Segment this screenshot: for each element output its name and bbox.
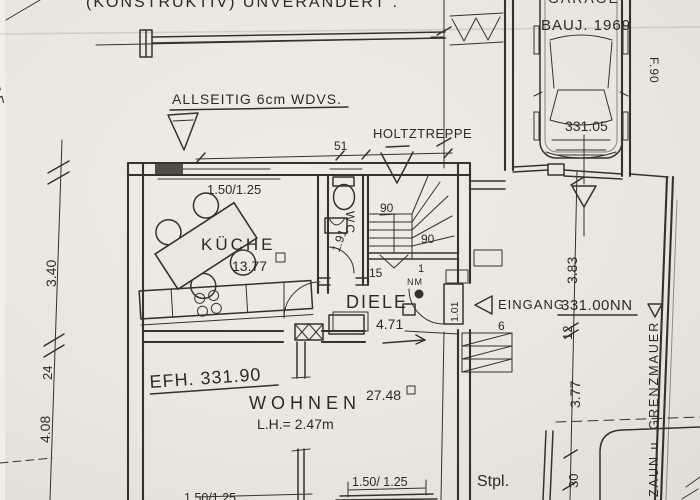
paper-background <box>0 0 700 500</box>
door-width-label: 1.01 <box>449 301 461 322</box>
dim-340: 3.40 <box>43 260 59 287</box>
wohnen-area: 27.48 <box>366 387 401 403</box>
construction-note: (KONSTRUKTIV) UNVERÄNDERT . <box>86 0 399 11</box>
stpl-label: Stpl. <box>477 473 509 490</box>
window-dim-top: 1.50/1.25 <box>207 182 261 197</box>
wall-poche <box>155 163 183 175</box>
diele-area: 4.71 <box>376 316 403 332</box>
eingang-level: 331.00NN <box>561 297 633 314</box>
zaun-label: ZAUN u. GRENZMAUER <box>647 321 661 497</box>
dim-15: 15 <box>369 266 383 280</box>
dim-24: 24 <box>40 366 55 380</box>
dim-12: 12 <box>560 326 575 340</box>
holztreppe-label: HOLTZTREPPE <box>373 126 472 141</box>
kueche-label: KÜCHE <box>201 235 276 254</box>
f90-label: F.90 <box>647 57 661 84</box>
garage-level-label: 331.05 <box>565 118 608 134</box>
wohnen-label: WOHNEN <box>249 393 361 413</box>
dim-90a: 90 <box>380 201 394 215</box>
dim-1: 1 <box>418 263 424 275</box>
dim-383: 3.83 <box>564 257 580 284</box>
stairs-nm-label: NM <box>407 277 423 287</box>
diele-label: DIELE <box>346 292 408 312</box>
dim-51: 51 <box>334 139 348 153</box>
floorplan-drawing: (KONSTRUKTIV) UNVERÄNDERT . GRENZE ALLSE… <box>0 0 700 500</box>
garage-label-clipped: GARAGE <box>548 0 620 6</box>
kueche-area: 13.77 <box>232 258 267 274</box>
dim-408: 4.08 <box>37 416 53 443</box>
dim-90b: 90 <box>421 232 435 246</box>
wohnen-height-label: L.H.= 2.47m <box>257 416 334 432</box>
window-dim-left: 1.50/1.25 <box>184 491 236 500</box>
door-point <box>415 290 424 299</box>
wdvs-label: ALLSEITIG 6cm WDVS. <box>172 91 342 107</box>
floorplan-scan: (KONSTRUKTIV) UNVERÄNDERT . GRENZE ALLSE… <box>0 0 700 500</box>
dim-6: 6 <box>498 319 505 333</box>
window-dim-mid: 1.50/ 1.25 <box>352 475 408 489</box>
baujahr-label: BAUJ. 1969 <box>541 17 631 34</box>
dim-377: 3.77 <box>567 381 583 408</box>
dim-30: 30 <box>566 474 581 488</box>
eingang-label: EINGANG <box>498 297 565 312</box>
